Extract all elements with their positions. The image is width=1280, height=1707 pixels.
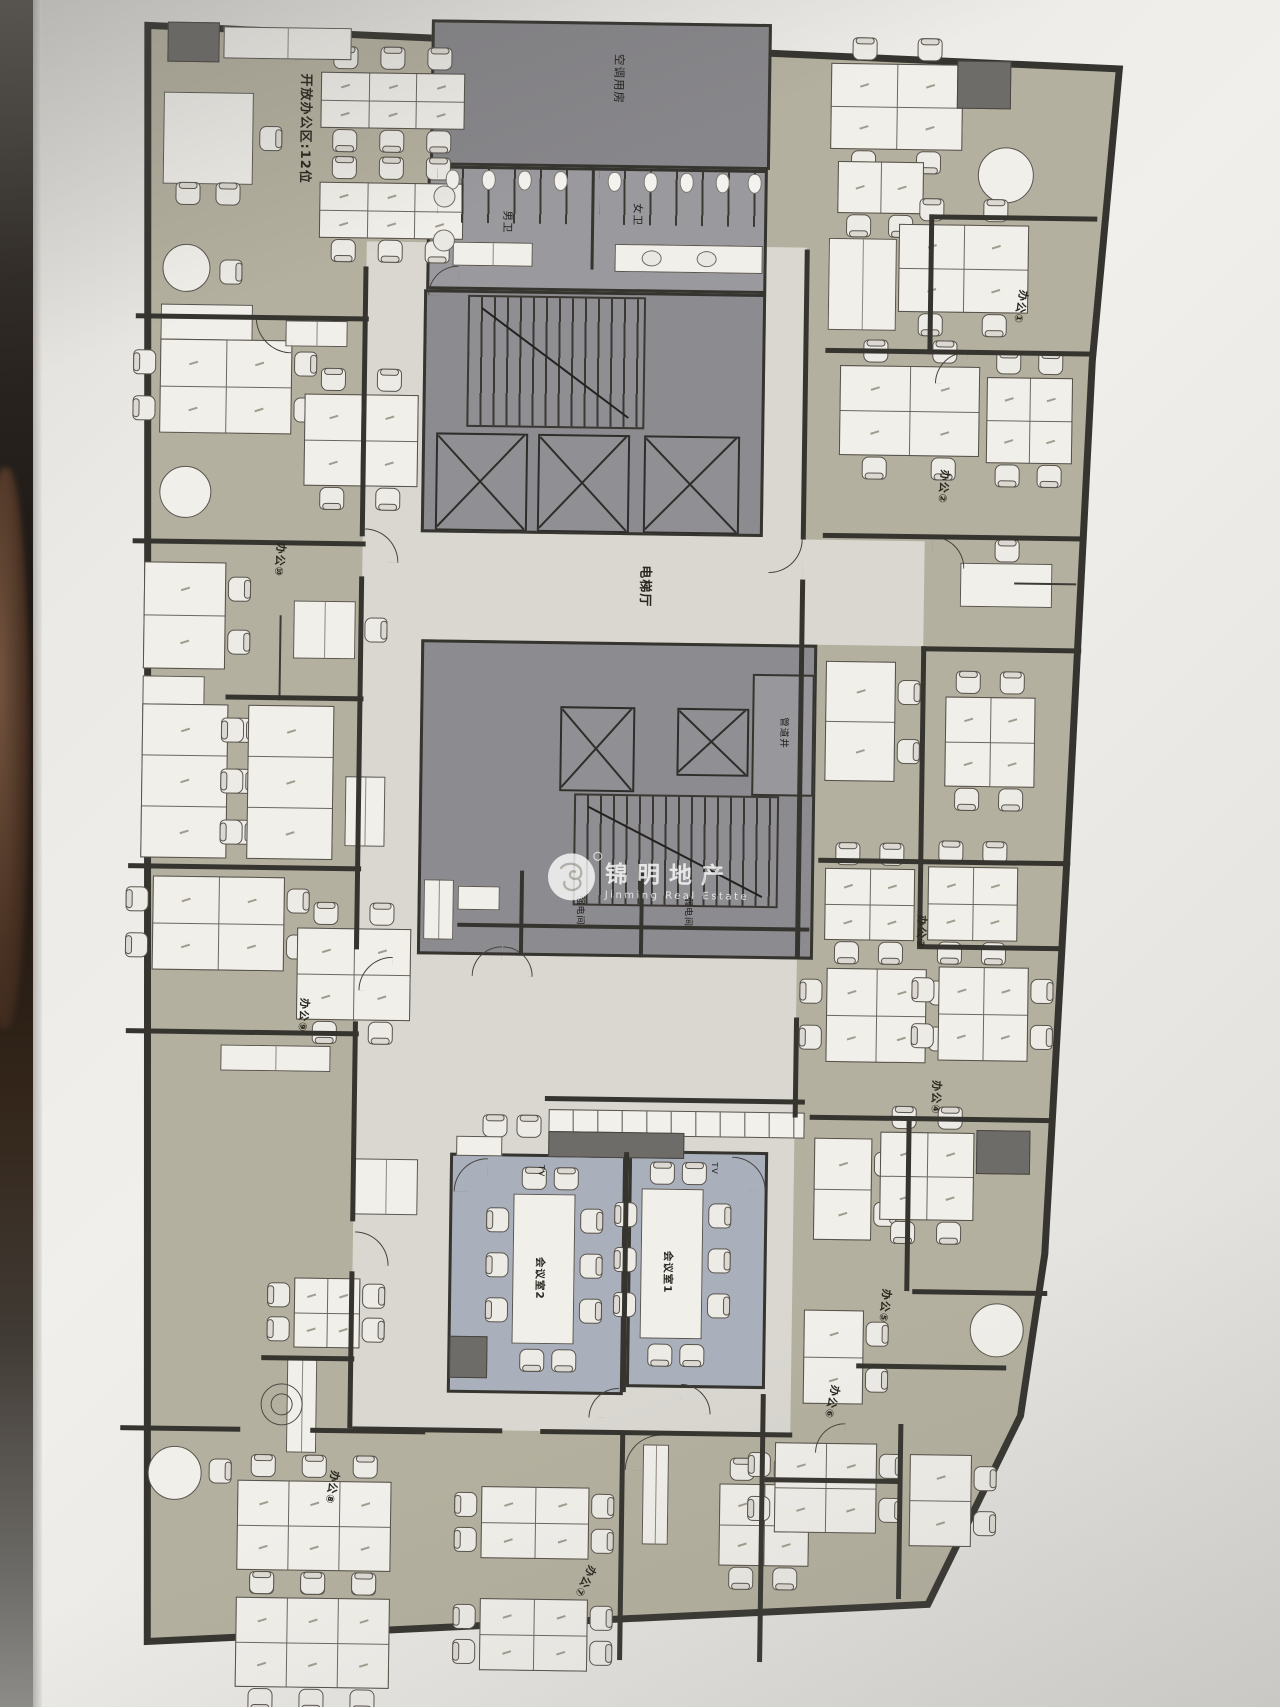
wall <box>765 1477 900 1484</box>
chair <box>298 1689 323 1707</box>
wall <box>261 1355 354 1361</box>
wall <box>128 863 361 871</box>
wall <box>360 266 369 536</box>
watermark-swirl-logo-icon <box>548 853 596 901</box>
floor-plan: 开放办公区:12位 空调用房 男卫 女卫 电梯厅 管道井 强电间 弱电间 会议室… <box>117 13 1128 1673</box>
label-office-3: 办公③ <box>913 915 931 950</box>
label-tv-room2: TV <box>537 1165 546 1177</box>
wall <box>825 348 1093 357</box>
wall <box>133 538 366 546</box>
label-ac-room: 空调用房 <box>611 54 628 104</box>
floor-plan-photo: 开放办公区:12位 空调用房 男卫 女卫 电梯厅 管道井 强电间 弱电间 会议室… <box>0 0 1280 1707</box>
wall <box>621 1152 629 1392</box>
wall <box>590 170 594 270</box>
chair <box>349 1689 374 1707</box>
wall <box>795 580 805 960</box>
label-toilet-women: 女卫 <box>630 203 645 226</box>
wall <box>856 1363 1006 1370</box>
wall <box>545 1096 805 1105</box>
label-office-9: 办公⑨ <box>294 997 313 1033</box>
wall <box>457 923 809 932</box>
wall <box>126 1028 359 1036</box>
wall <box>347 1271 354 1428</box>
wall <box>617 1432 625 1660</box>
wall <box>120 1425 240 1432</box>
wall <box>917 646 926 946</box>
label-elevator-hall: 电梯厅 <box>637 565 657 607</box>
wall <box>823 533 1085 542</box>
label-tv-room1: TV <box>710 1162 719 1174</box>
wall <box>921 646 1081 653</box>
wall <box>810 1115 1052 1123</box>
wall <box>136 313 369 321</box>
label-meeting-room-1: 会议室1 <box>660 1251 676 1294</box>
wall <box>519 871 524 956</box>
wall <box>818 858 1070 867</box>
wall <box>904 1116 911 1291</box>
paper-left-edge <box>33 0 42 1707</box>
watermark-cn-text: 锦明地产 <box>605 854 750 890</box>
label-office-4: 办公④ <box>928 1080 946 1115</box>
wall <box>801 250 810 540</box>
label-office-10: 办公⑩ <box>271 542 290 578</box>
wall <box>354 576 364 949</box>
wall <box>896 1424 903 1599</box>
wall <box>350 1021 358 1221</box>
label-meeting-room-2: 会议室2 <box>532 1257 548 1300</box>
wall <box>932 214 1097 221</box>
chair <box>248 1688 273 1707</box>
wall <box>540 1429 792 1438</box>
wall <box>917 944 1065 951</box>
label-toilet-men: 男卫 <box>500 210 515 233</box>
watermark: 锦明地产 Jinming Real Estate <box>548 853 750 903</box>
wall <box>225 695 363 702</box>
wall-layer <box>117 13 1128 1673</box>
label-pipe-shaft: 管道井 <box>778 717 792 749</box>
wall <box>912 1289 1047 1296</box>
watermark-en-text: Jinming Real Estate <box>605 889 749 902</box>
label-open-office: 开放办公区:12位 <box>297 73 318 184</box>
wall <box>927 214 934 354</box>
